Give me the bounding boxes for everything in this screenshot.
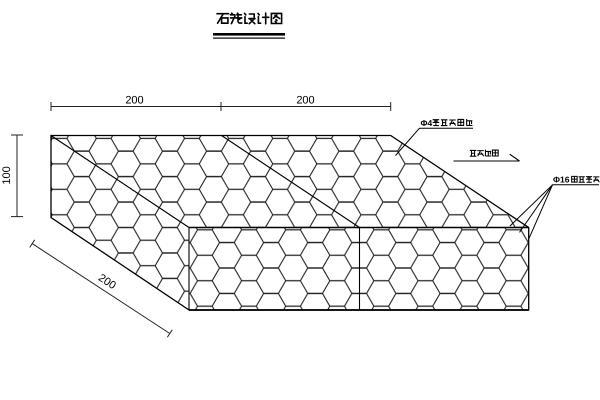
svg-text:200: 200 bbox=[296, 95, 314, 107]
svg-text:200: 200 bbox=[125, 95, 143, 107]
svg-text:Φ4: Φ4 bbox=[421, 118, 433, 128]
svg-text:Φ16: Φ16 bbox=[553, 175, 570, 185]
svg-text:100: 100 bbox=[1, 166, 13, 184]
